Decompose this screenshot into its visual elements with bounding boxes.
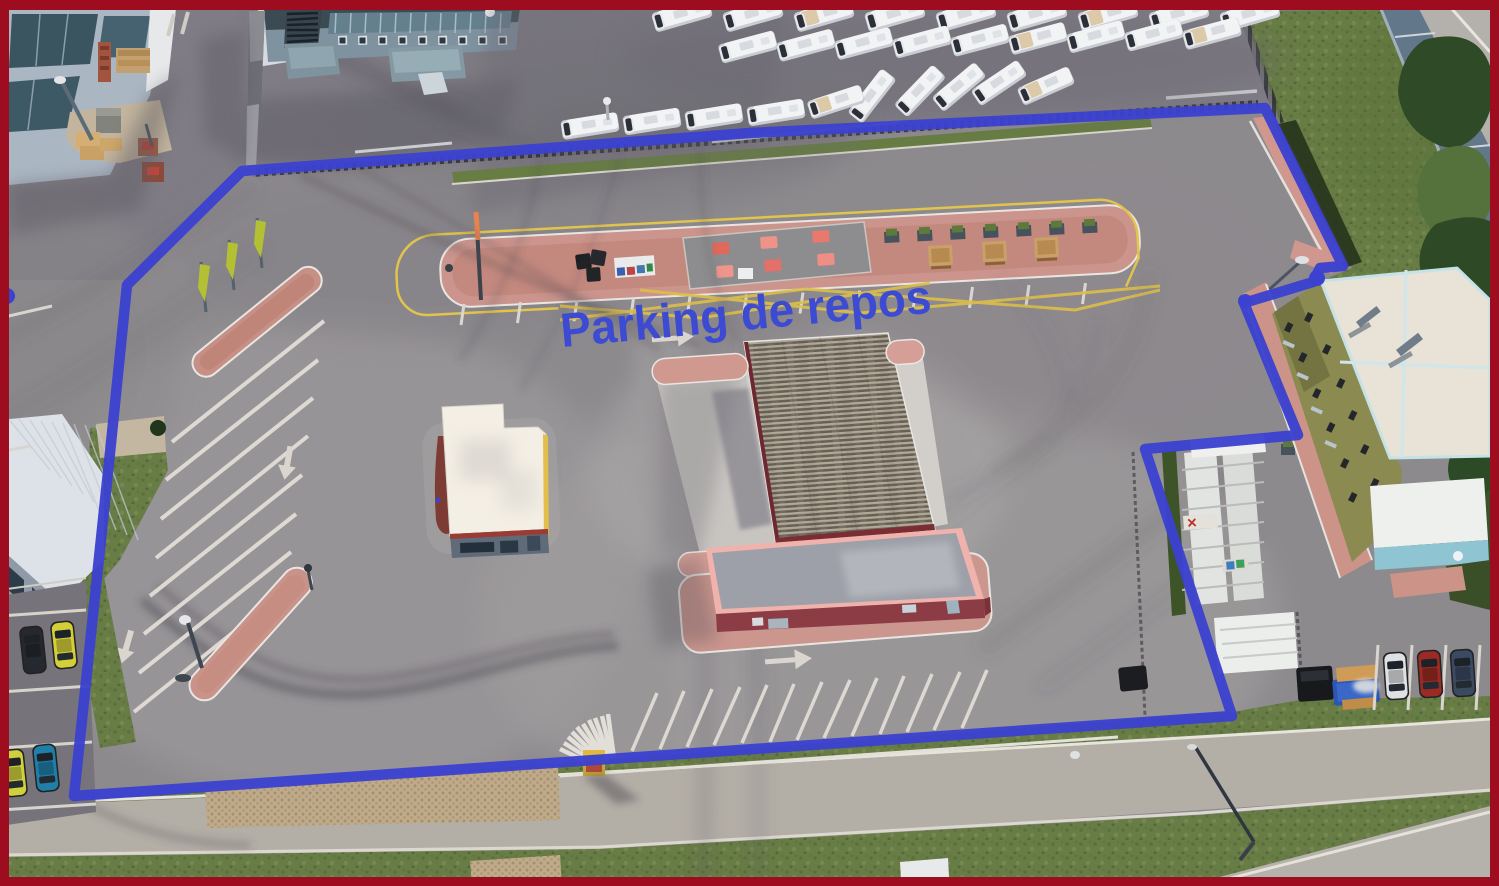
svg-text:✕: ✕ <box>1186 515 1198 531</box>
